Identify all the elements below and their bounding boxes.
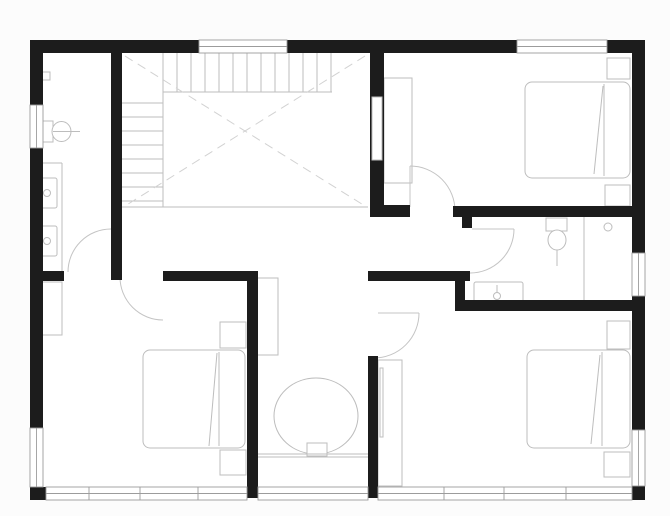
nightstand1b <box>605 185 630 206</box>
window-right-bedroom3 <box>632 430 645 486</box>
window-left-bedroom2 <box>30 428 43 487</box>
bed3-mattress <box>527 350 630 448</box>
nightstand3a <box>607 321 630 349</box>
wall-corner-bottom-right <box>632 486 645 500</box>
wall-hall-west-stub <box>40 271 64 281</box>
sink1-basin <box>44 190 51 197</box>
floor-plan-svg <box>0 0 670 516</box>
wall-bedroom3-west <box>368 356 378 498</box>
closet-nook <box>257 278 278 355</box>
wardrobe-bedroom3-rail <box>380 368 383 437</box>
wall-bathroom2-door-stub <box>462 217 472 228</box>
window-bottom-bedroom3 <box>378 487 632 500</box>
wall-fixture <box>42 72 50 80</box>
nightstand2b <box>220 450 246 475</box>
wall-top-right <box>607 40 645 53</box>
bed2-mattress <box>143 350 245 448</box>
wall-corner-bottom-left <box>30 487 46 500</box>
window-top-stairwell <box>199 40 287 53</box>
wall-hall-east <box>368 271 470 281</box>
window-left-bathroom1 <box>30 105 43 148</box>
wall-right-upper <box>632 53 645 253</box>
vanity-basin <box>494 293 501 300</box>
wall-left-upper <box>30 53 43 105</box>
sink2-basin <box>44 238 51 245</box>
closet-bedroom1 <box>384 78 412 183</box>
nightstand1a <box>607 58 630 79</box>
window-top-bedroom1 <box>517 40 607 53</box>
wall-bathroom2-south <box>455 300 632 311</box>
floor-plan <box>0 0 670 516</box>
bed1-mattress <box>525 82 630 178</box>
window-bottom-bedroom2 <box>46 487 247 500</box>
wall-hall-south <box>163 271 253 281</box>
window-bottom-nook <box>258 487 368 500</box>
wall-right-mid <box>632 296 645 430</box>
wall-mid-vertical <box>247 271 258 498</box>
wall-left-main <box>30 148 43 428</box>
wall-top-mid <box>287 40 517 53</box>
nightstand2a <box>220 322 246 348</box>
nightstand3b <box>604 452 630 477</box>
window-right-bathroom2 <box>632 253 645 296</box>
wall-top-left <box>30 40 199 53</box>
toilet2-bowl <box>548 230 566 250</box>
wall-bathroom2-north <box>453 206 632 217</box>
toilet2-tank <box>546 218 567 231</box>
closet-pocket-slot <box>372 97 382 160</box>
wall-bedroom1-south <box>370 205 410 217</box>
shower-drain <box>604 223 612 231</box>
wall-bathroom1-east <box>111 53 122 280</box>
